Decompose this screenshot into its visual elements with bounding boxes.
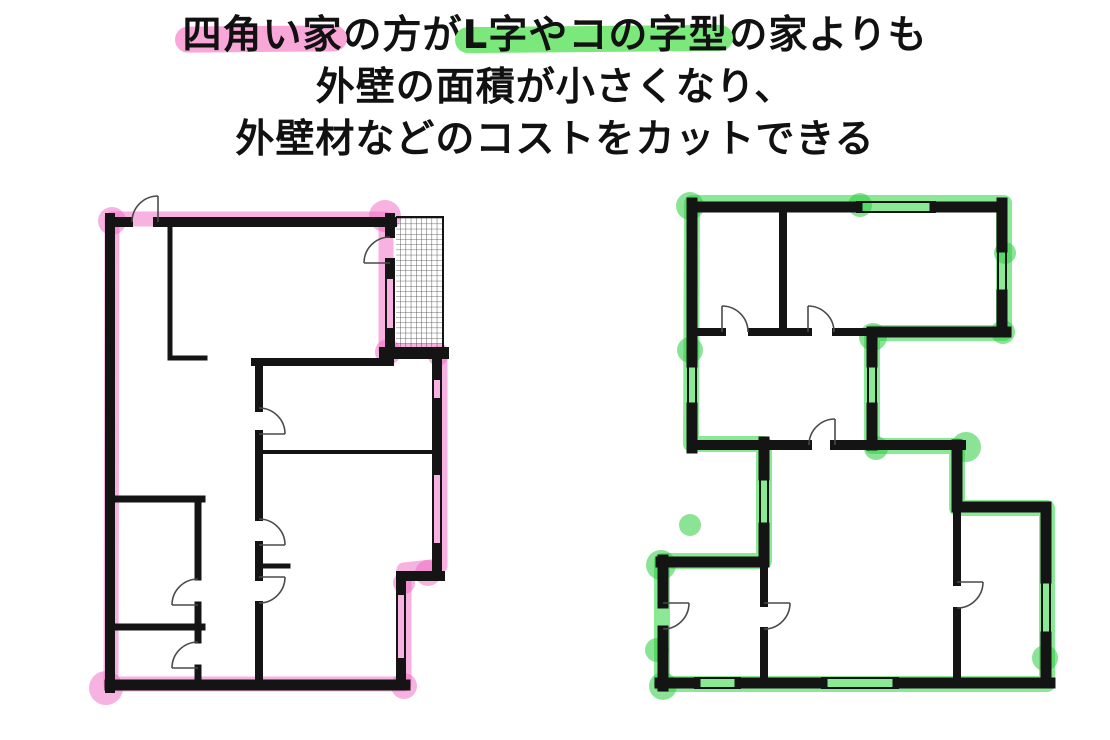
green-marker-blob [679, 514, 701, 536]
left-floor-plan [89, 196, 448, 705]
doors [663, 306, 983, 629]
exterior-walls [660, 203, 1050, 686]
floor-plans-figure [0, 0, 1110, 740]
balcony-grid [396, 217, 443, 352]
infographic: 四角い家の方がL字やコの字型の家よりも 外壁の面積が小さくなり、 外壁材などのコ… [0, 0, 1110, 740]
right-floor-plan [645, 192, 1058, 700]
